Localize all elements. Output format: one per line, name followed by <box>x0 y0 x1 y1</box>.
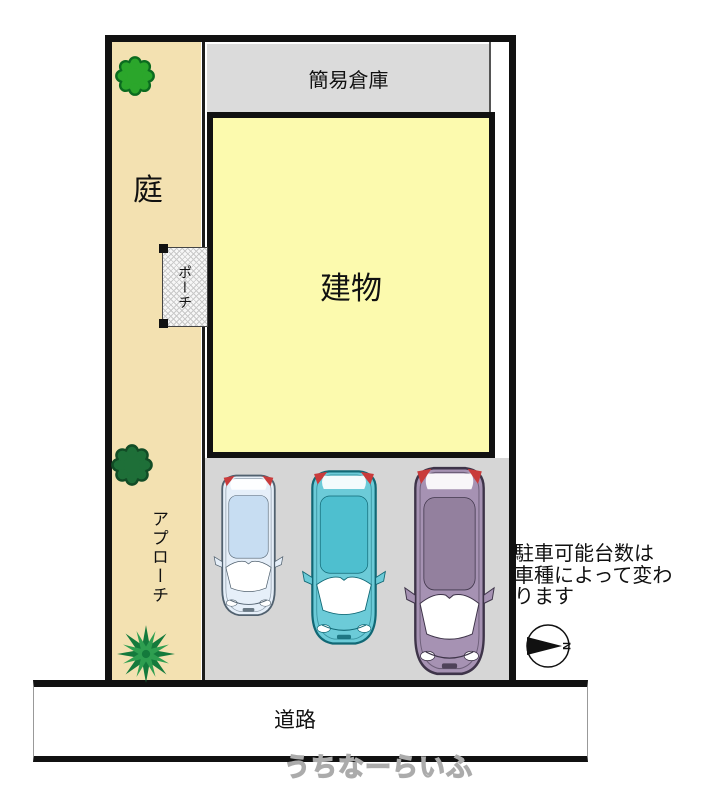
car-hatchback <box>300 467 388 647</box>
site-plan: 簡易倉庫 建物 ポーチ 庭 アプローチ <box>0 0 703 800</box>
porch-corner-post <box>159 244 168 253</box>
parking-note-line: 駐車可能台数は <box>514 544 699 566</box>
palm-plant-icon <box>115 623 177 685</box>
bush-tree-icon <box>109 442 155 488</box>
round-tree-icon <box>113 54 157 98</box>
porch: ポーチ <box>162 247 208 327</box>
watermark: うちなーらいふ <box>284 747 473 784</box>
approach-label: アプローチ <box>146 510 171 605</box>
garden-label: 庭 <box>133 165 163 209</box>
porch-corner-post <box>159 319 168 328</box>
parking-note-line: 車種によって変わ <box>514 566 699 588</box>
car-compact <box>212 472 285 618</box>
porch-label: ポーチ <box>175 265 195 310</box>
road-label: 道路 <box>250 704 340 734</box>
parking-note: 駐車可能台数は 車種によって変わ ります <box>514 544 699 609</box>
compass-north-letter: N <box>560 642 572 650</box>
parking-note-line: ります <box>514 587 699 609</box>
car-minivan <box>402 463 497 678</box>
north-compass-icon: N <box>522 620 574 672</box>
